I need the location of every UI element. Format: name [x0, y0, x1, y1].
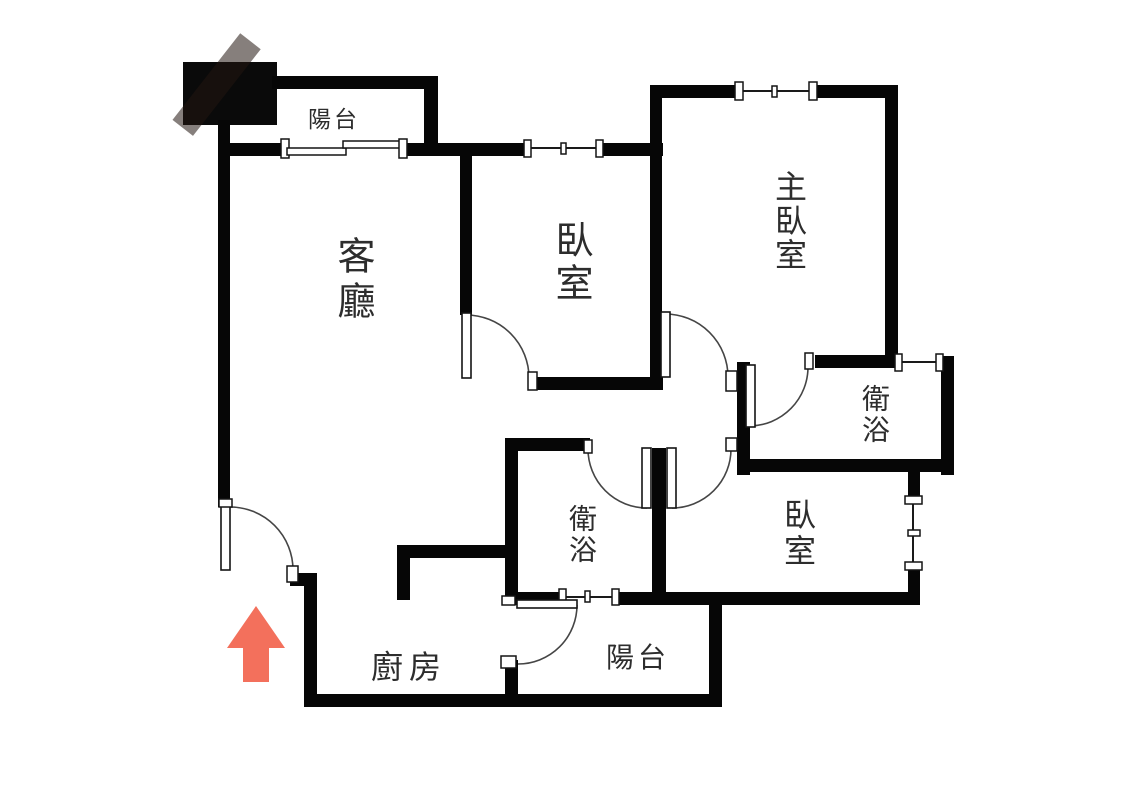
- wall: [304, 694, 722, 707]
- wall: [218, 120, 230, 507]
- wall: [272, 76, 437, 89]
- room-label-master-bedroom: 主臥室: [766, 170, 812, 272]
- door-bedroom-lower: [667, 438, 737, 508]
- wall: [397, 545, 508, 558]
- window-sliding-balcony-top: [281, 139, 407, 158]
- wall: [530, 377, 663, 390]
- window-master-bedroom: [735, 82, 817, 100]
- window-bathroom-upper: [895, 354, 943, 371]
- wall: [662, 85, 737, 98]
- door-bedroom-top: [462, 313, 537, 390]
- room-label-bathroom-middle: 衛浴: [561, 504, 601, 566]
- wall: [472, 143, 527, 156]
- wall: [460, 143, 472, 315]
- wall: [397, 545, 410, 600]
- room-label-kitchen: 廚房: [371, 642, 447, 688]
- entrance-arrow-icon: [227, 606, 285, 682]
- room-label-balcony-top: 陽台: [308, 100, 360, 134]
- wall: [737, 459, 954, 472]
- room-label-living-room: 客廳: [326, 236, 381, 326]
- wall: [652, 448, 666, 598]
- floor-plan: 陽台 客廳 臥室 主臥室 衛浴 衛浴 臥室 廚房 陽台: [0, 0, 1123, 794]
- room-label-bedroom-lower: 臥室: [775, 498, 821, 570]
- door-bathroom-upper: [746, 353, 813, 427]
- wall: [304, 573, 317, 701]
- windows: [281, 82, 943, 605]
- wall: [218, 143, 285, 156]
- door-balcony-bottom: [501, 596, 577, 668]
- wall: [885, 85, 898, 368]
- walls: [218, 76, 954, 707]
- wall: [709, 598, 722, 707]
- door-entrance: [219, 499, 298, 582]
- wall: [505, 438, 518, 605]
- window-bedroom-top: [524, 140, 603, 157]
- door-master-bedroom: [661, 312, 737, 391]
- wall: [815, 355, 898, 368]
- floor-plan-drawing: [0, 0, 1123, 794]
- room-label-balcony-bottom: 陽台: [606, 636, 670, 676]
- wall: [941, 356, 954, 475]
- room-label-bathroom-upper: 衛浴: [854, 384, 894, 446]
- door-bathroom-middle: [584, 440, 651, 508]
- window-bedroom-lower: [905, 496, 922, 570]
- room-label-bedroom-top: 臥室: [544, 220, 599, 306]
